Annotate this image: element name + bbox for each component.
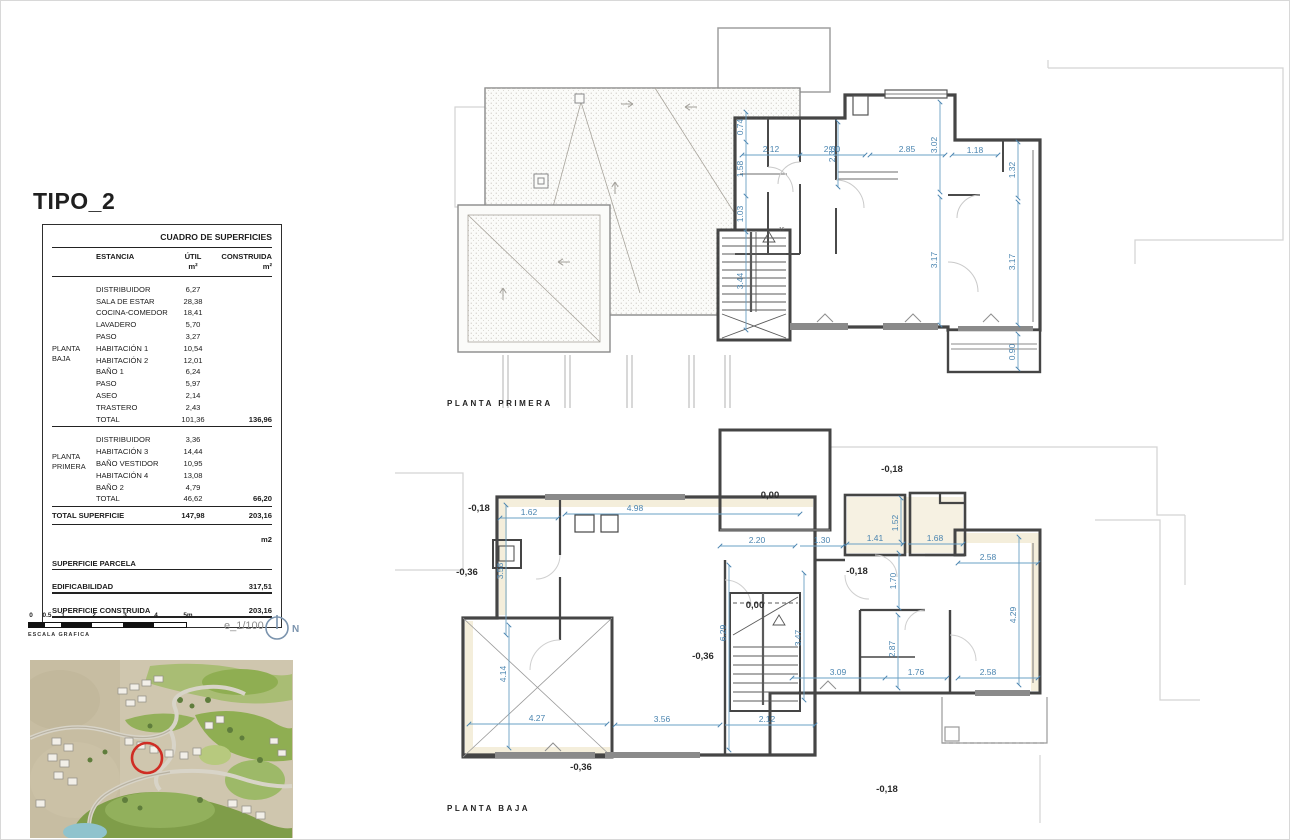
table-units: m² m² — [52, 263, 272, 275]
page-title: TIPO_2 — [33, 188, 115, 215]
dimension-label: 4.14 — [498, 665, 508, 682]
table-row: COCINA-COMEDOR18,41 — [52, 307, 272, 319]
dimension-label: 4.29 — [1008, 606, 1018, 623]
north-arrow: N — [263, 612, 309, 647]
stair-count: 16 — [779, 227, 785, 233]
table-row-total: TOTAL101,36136,96 — [52, 414, 272, 426]
table-row: BAÑO 24,79 — [52, 482, 272, 494]
north-label: N — [292, 624, 299, 635]
group-label: PLANTA BAJA — [52, 344, 96, 364]
divider — [52, 506, 272, 507]
table-title: CUADRO DE SUPERFICIES — [52, 231, 272, 246]
table-header: ESTANCIA ÚTIL CONSTRUIDA — [52, 249, 272, 264]
total-superficie-row: TOTAL SUPERFICIE 147,98 203,16 — [52, 508, 272, 523]
tick: 5m — [183, 612, 192, 619]
plan-primera: 16 2.12 2.00 2 — [435, 22, 1290, 417]
plan-baja-drawing: 1.62 4.98 3.58 2.20 1.30 1.41 1.68 1.52 … — [395, 425, 1205, 825]
dimension-label: 1.32 — [1007, 161, 1017, 178]
dimension-label: 3.56 — [654, 714, 671, 724]
divider — [52, 592, 272, 594]
divider — [52, 247, 272, 248]
dimension-label: 1.62 — [521, 507, 538, 517]
tick: 0.5 — [43, 612, 52, 619]
dimension-label: 3.17 — [929, 251, 939, 268]
unit-construida: m² — [216, 263, 272, 271]
dimension-label: 2.87 — [887, 640, 897, 657]
unit-util: m² — [170, 263, 216, 271]
table-row: TRASTERO2,43 — [52, 402, 272, 414]
col-util: ÚTIL — [170, 253, 216, 261]
surface-table: CUADRO DE SUPERFICIES ESTANCIA ÚTIL CONS… — [42, 224, 282, 628]
dimension-label: 2.12 — [763, 144, 780, 154]
dimension-label: 4.98 — [627, 503, 644, 513]
dimension-label: 3.17 — [1007, 253, 1017, 270]
plan-primera-drawing: 16 2.12 2.00 2 — [435, 22, 1290, 412]
dimension-label: 2.58 — [980, 552, 997, 562]
dimension-label: 1.03 — [735, 205, 745, 222]
dimension-label: 1.30 — [814, 535, 831, 545]
superficie-parcela-row: SUPERFICIE PARCELA — [52, 554, 272, 568]
context-block — [718, 28, 830, 92]
dimension-label: 4.27 — [529, 713, 546, 723]
m2-label: m2 — [52, 526, 272, 547]
divider — [52, 426, 272, 427]
dimension-label: 1.18 — [967, 145, 984, 155]
table-row: SALA DE ESTAR28,38 — [52, 296, 272, 308]
dimension-label: 2.12 — [759, 714, 776, 724]
level-label: 0,00 — [746, 600, 765, 611]
table-row: PASO5,97 — [52, 378, 272, 390]
group-label: PLANTA PRIMERA — [52, 452, 96, 472]
table-row: LAVADERO5,70 — [52, 319, 272, 331]
dimension-label: 3.58 — [495, 562, 505, 579]
scalebar-caption: ESCALA GRAFICA — [28, 632, 288, 638]
divider — [52, 524, 272, 525]
dimension-label: 2.58 — [980, 667, 997, 677]
tick: 1 — [61, 612, 65, 619]
level-label: -0,36 — [456, 567, 478, 578]
porch — [942, 697, 1047, 743]
table-row: DISTRIBUIDOR3,36 — [52, 434, 272, 446]
table-row: BAÑO 16,24 — [52, 366, 272, 378]
tick: 0 — [29, 612, 33, 619]
dimension-label: 3.09 — [830, 667, 847, 677]
dimension-label: 2.85 — [899, 144, 916, 154]
tick: 4 — [154, 612, 158, 619]
walls — [718, 90, 1040, 372]
level-label: 0,00 — [761, 490, 780, 501]
dimension-label: 6.29 — [718, 624, 728, 641]
tick: 3 — [123, 612, 127, 619]
table-row: ASEO2,14 — [52, 390, 272, 402]
level-label: -0,18 — [881, 464, 903, 475]
scale-ratio: e_1/100 — [224, 620, 264, 632]
scale-bar — [28, 622, 187, 628]
edificabilidad-row: EDIFICABILIDAD317,51 — [52, 577, 272, 591]
group-planta-baja: PLANTA BAJA DISTRIBUIDOR6,27 SALA DE EST… — [52, 278, 272, 426]
site-map-image — [30, 660, 293, 838]
site-map — [30, 660, 293, 840]
dimension-label: 3.02 — [929, 136, 939, 153]
level-label: -0,36 — [692, 651, 714, 662]
dimension-label: 3.44 — [735, 272, 745, 289]
dimension-label: 1.68 — [927, 533, 944, 543]
level-label: -0,18 — [468, 503, 490, 514]
scalebar-ticks: 0 0.5 1 2 3 4 5m — [28, 612, 288, 620]
plan-baja-label: PLANTA BAJA — [447, 804, 530, 813]
dimension-label: 1.58 — [735, 160, 745, 177]
scale-area: 0 0.5 1 2 3 4 5m ESCALA GRAFICA e_1/100 … — [28, 612, 288, 656]
table-row-total: TOTAL46,6266,20 — [52, 493, 272, 505]
dimension-label: 1.52 — [890, 514, 900, 531]
tick: 2 — [92, 612, 96, 619]
dimension-label: 3.47 — [793, 629, 803, 646]
col-construida: CONSTRUIDA — [216, 253, 272, 261]
level-label: -0,18 — [846, 566, 868, 577]
level-label: -0,36 — [570, 762, 592, 773]
north-arrow-icon: N — [263, 612, 309, 642]
divider — [52, 569, 272, 570]
plan-primera-label: PLANTA PRIMERA — [447, 399, 553, 408]
dimension-label: 1.76 — [908, 667, 925, 677]
table-row: PASO3,27 — [52, 331, 272, 343]
group-planta-primera: PLANTA PRIMERA DISTRIBUIDOR3,36 HABITACI… — [52, 428, 272, 505]
divider — [52, 276, 272, 277]
col-estancia: ESTANCIA — [96, 253, 170, 261]
dimension-label: 0.74 — [735, 118, 745, 135]
plan-baja: 1.62 4.98 3.58 2.20 1.30 1.41 1.68 1.52 … — [395, 425, 1205, 830]
dimension-label: 2.20 — [749, 535, 766, 545]
drawing-sheet: TIPO_2 CUADRO DE SUPERFICIES ESTANCIA ÚT… — [0, 0, 1290, 840]
table-row: DISTRIBUIDOR6,27 — [52, 284, 272, 296]
dimension-label: 1.41 — [867, 533, 884, 543]
dimension-label: 2.32 — [827, 145, 837, 162]
dimension-label: 1.70 — [888, 572, 898, 589]
level-label: -0,18 — [876, 784, 898, 795]
dimension-label: 0.90 — [1007, 343, 1017, 360]
